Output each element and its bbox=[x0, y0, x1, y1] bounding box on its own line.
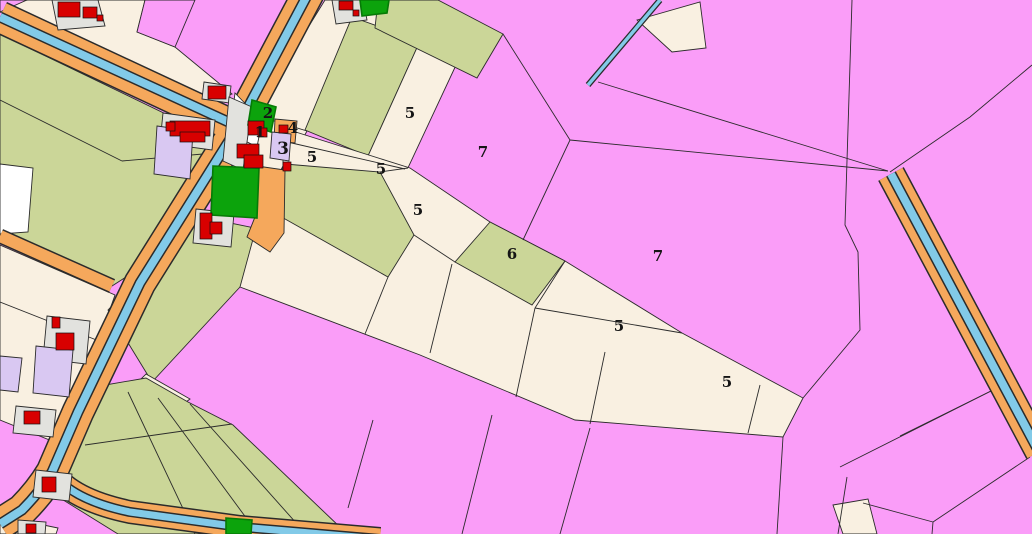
map-canvas[interactable]: 1 2 3 4 5 5 5 5 6 7 7 5 5 bbox=[0, 0, 1032, 534]
building bbox=[42, 477, 56, 492]
building bbox=[166, 122, 175, 131]
parcel-label-3: 3 bbox=[277, 139, 289, 159]
building-4 bbox=[279, 125, 288, 133]
parcel-label-5d: 5 bbox=[413, 201, 423, 219]
orchard-large bbox=[211, 166, 259, 218]
building bbox=[244, 155, 263, 168]
building bbox=[210, 222, 222, 234]
map-viewport[interactable]: 1 2 3 4 5 5 5 5 6 7 7 5 5 bbox=[0, 0, 1032, 534]
building bbox=[208, 86, 226, 99]
orchard-top bbox=[360, 0, 389, 16]
building bbox=[58, 2, 80, 17]
building bbox=[83, 7, 97, 18]
parcel-label-2: 2 bbox=[263, 104, 273, 122]
garden-lavender bbox=[33, 346, 73, 397]
field-white bbox=[0, 164, 33, 234]
garden-lavender bbox=[0, 356, 22, 392]
building bbox=[283, 162, 291, 171]
parcel-label-1: 1 bbox=[255, 123, 265, 141]
parcel-label-5a: 5 bbox=[307, 148, 317, 166]
building bbox=[52, 317, 60, 328]
parcel-label-7b: 7 bbox=[653, 247, 663, 265]
building bbox=[353, 10, 359, 16]
parcel-label-5c: 5 bbox=[405, 104, 415, 122]
parcel-label-7a: 7 bbox=[478, 143, 488, 161]
building bbox=[97, 15, 103, 21]
parcel-label-5f: 5 bbox=[722, 373, 732, 391]
parcel-label-6: 6 bbox=[507, 245, 517, 263]
building bbox=[56, 333, 74, 350]
orchard-bottom bbox=[226, 518, 252, 534]
parcel-label-5b: 5 bbox=[376, 160, 386, 178]
building bbox=[339, 1, 353, 10]
parcel-label-4: 4 bbox=[288, 119, 298, 137]
building bbox=[24, 411, 40, 424]
building bbox=[26, 524, 36, 533]
parcel-label-5e: 5 bbox=[614, 317, 624, 335]
building bbox=[180, 132, 205, 142]
